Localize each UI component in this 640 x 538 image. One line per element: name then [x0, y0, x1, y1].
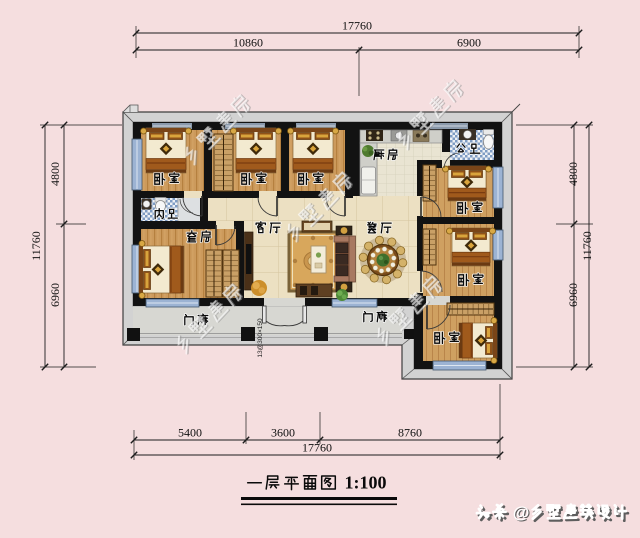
svg-text:10860: 10860	[233, 36, 263, 50]
svg-text:13@300×150: 13@300×150	[257, 318, 264, 358]
svg-text:3600: 3600	[271, 426, 295, 440]
svg-text:17760: 17760	[302, 441, 332, 455]
svg-text:17760: 17760	[342, 19, 372, 33]
svg-text:6960: 6960	[566, 283, 580, 307]
svg-text:4800: 4800	[566, 162, 580, 186]
svg-text:6900: 6900	[457, 36, 481, 50]
svg-text:1:100: 1:100	[345, 472, 387, 492]
svg-text:4800: 4800	[48, 162, 62, 186]
svg-text:11760: 11760	[580, 231, 594, 261]
svg-text:6960: 6960	[48, 283, 62, 307]
svg-text:@: @	[513, 503, 530, 522]
svg-text:8760: 8760	[398, 426, 422, 440]
svg-text:11760: 11760	[29, 231, 43, 261]
svg-text:5400: 5400	[178, 426, 202, 440]
